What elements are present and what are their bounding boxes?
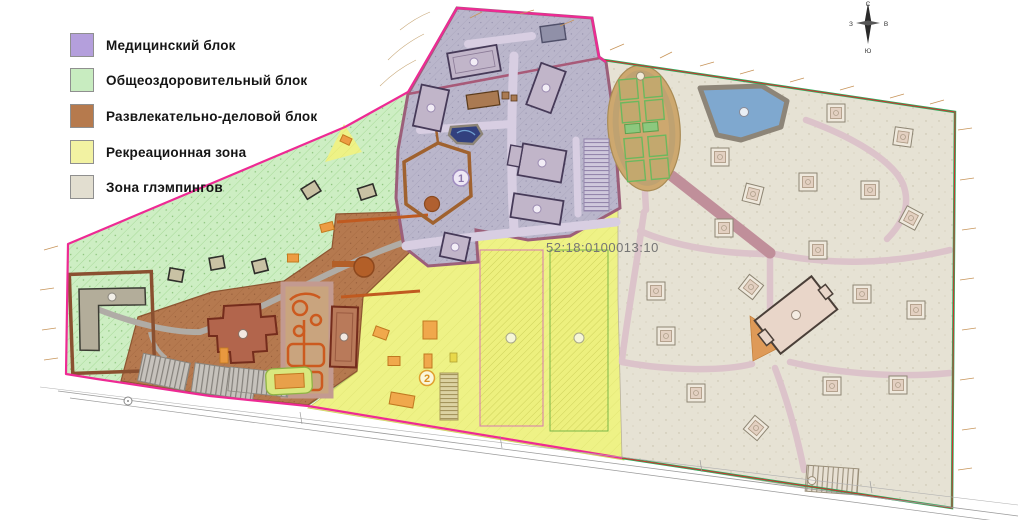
field-marker [574, 333, 584, 343]
round-plaza [354, 257, 374, 277]
kiosk [220, 348, 228, 363]
building-marker [239, 330, 248, 339]
svg-text:2: 2 [424, 373, 430, 385]
legend-item-recreation: Рекреационная зона [70, 140, 246, 164]
legend-label-business: Развлекательно-деловой блок [106, 109, 317, 124]
legend-swatch-medical [70, 33, 94, 57]
building-marker [340, 333, 348, 341]
roundabout [425, 197, 440, 212]
area-label-1: 1 [453, 170, 469, 186]
cottage [168, 268, 184, 282]
compass-rose-icon: С Ю З В [849, 1, 888, 55]
compass-east-label: В [884, 21, 888, 28]
pavilion [424, 354, 432, 368]
legend-swatch-glamping [70, 175, 94, 199]
legend-item-business: Развлекательно-деловой блок [70, 104, 317, 128]
building-marker [108, 293, 116, 301]
legend-item-health: Общеоздоровительный блок [70, 68, 307, 92]
legend-label-medical: Медицинский блок [106, 38, 236, 53]
site-plan-page: Медицинский блок Общеоздоровительный бло… [0, 0, 1024, 520]
parking-recreation [440, 373, 458, 420]
pavilion [423, 321, 437, 339]
legend-label-recreation: Рекреационная зона [106, 145, 246, 160]
field-marker [506, 333, 516, 343]
parking-medical [584, 139, 609, 211]
legend-swatch-health [70, 68, 94, 92]
cadastral-number-label: 52:18:0100013:10 [546, 240, 659, 255]
sport-pad [265, 367, 312, 395]
kiosk [450, 353, 457, 362]
compass-north-label: С [866, 1, 871, 8]
compass-south-label: Ю [865, 48, 872, 55]
legend-item-glamping: Зона глэмпингов [70, 175, 223, 199]
pond-marker [740, 108, 749, 117]
cottage [209, 256, 225, 270]
pavilion [388, 357, 400, 366]
compass-west-label: З [849, 21, 853, 28]
pavilion [288, 254, 299, 262]
legend-swatch-business [70, 104, 94, 128]
legend-label-health: Общеоздоровительный блок [106, 73, 307, 88]
legend-swatch-recreation [70, 140, 94, 164]
cottage [252, 258, 268, 273]
svg-text:1: 1 [458, 173, 464, 185]
legend-label-glamping: Зона глэмпингов [106, 180, 223, 195]
area-label-2: 2 [420, 371, 435, 386]
legend-item-medical: Медицинский блок [70, 33, 236, 57]
legend: Медицинский блок Общеоздоровительный бло… [0, 0, 360, 220]
fountain-pond [449, 125, 482, 144]
